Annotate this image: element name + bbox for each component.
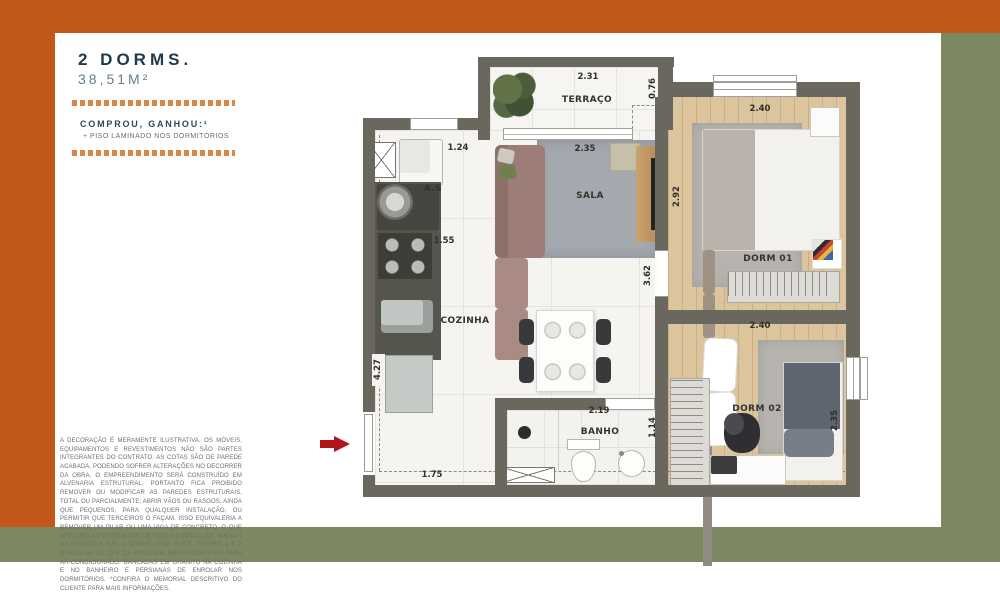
legal-disclaimer: A DECORAÇÃO É MERAMENTE ILUSTRATIVA. OS … xyxy=(60,437,242,593)
dorm2-desk xyxy=(710,455,786,485)
kitchen-sink-basin xyxy=(381,300,423,325)
sofa-pillow xyxy=(497,147,516,164)
promo-heading: COMPROU, GANHOU:¹ xyxy=(80,119,209,129)
dorm2-laptop xyxy=(711,456,737,474)
dim-cozinha-depth: 4.27 xyxy=(372,354,385,386)
hall-door-opening xyxy=(655,250,668,297)
dim-hall-depth: 3.62 xyxy=(642,260,655,292)
dorm1-window-sill xyxy=(713,75,797,82)
frame-right-column xyxy=(941,33,1000,562)
room-label-banho: BANHO xyxy=(570,426,630,438)
frame-top-bar xyxy=(0,0,1000,33)
dining-chair xyxy=(596,357,611,383)
dorm1-bed xyxy=(702,129,840,251)
room-label-sala: SALA xyxy=(560,190,620,202)
room-label-dorm2: DORM 02 xyxy=(717,403,797,415)
bathroom-sink-drain xyxy=(619,451,624,456)
entrance-arrow-icon xyxy=(320,436,352,452)
unit-area: 38,51M² xyxy=(78,71,150,87)
dorm1-color-artbox-stripes xyxy=(813,240,833,260)
dorm1-window xyxy=(713,82,797,97)
wall-terraco-top xyxy=(478,57,674,67)
dorm2-window-sill xyxy=(860,357,868,400)
room-label-cozinha: COZINHA xyxy=(425,315,505,327)
entrance-door-leaf xyxy=(364,414,373,472)
sofa-cushion xyxy=(495,258,528,309)
dim-terraco-depth: 0.76 xyxy=(647,73,660,105)
shower-head xyxy=(518,426,531,439)
dining-table xyxy=(536,310,594,392)
dim-terraco-width: 2.31 xyxy=(558,71,618,83)
room-label-terraco: TERRAÇO xyxy=(547,94,627,106)
dim-sala-width: 2.35 xyxy=(555,143,615,155)
frame-left-bar xyxy=(0,33,55,527)
laundry-tank-basin xyxy=(400,140,430,173)
brochure-page: { "colors": { "accent_orange": "#c3581b"… xyxy=(0,0,1000,562)
dorm1-wardrobe xyxy=(727,271,840,303)
dining-chair xyxy=(519,357,534,383)
wall-hall-lower xyxy=(655,297,668,485)
promo-item: + PISO LAMINADO NOS DORMITÓRIOS xyxy=(83,133,229,140)
tv xyxy=(651,158,655,230)
dim-as-counter: 1.55 xyxy=(416,235,472,247)
shower-divider xyxy=(558,410,559,472)
promo-bullet-icon: + xyxy=(83,133,88,140)
wall-bottom-outer xyxy=(363,485,860,497)
dim-cozinha-entry: 1.75 xyxy=(404,469,460,481)
wall-dorm1-top-right xyxy=(797,82,860,97)
dorm2-pillow xyxy=(784,429,834,457)
room-label-dorm1: DORM 01 xyxy=(728,253,808,265)
wall-right-outer-lower xyxy=(846,400,860,497)
bathroom-sink xyxy=(618,450,645,477)
room-label-as: A.S xyxy=(405,183,461,195)
dorm2-wardrobe-hangers xyxy=(671,379,703,479)
dining-chair xyxy=(519,319,534,345)
dashed-divider-bottom xyxy=(72,150,235,156)
sala-terraco-sliding-door xyxy=(503,128,633,140)
dim-dorm1-width: 2.40 xyxy=(730,103,790,115)
promo-item-label: PISO LAMINADO NOS DORMITÓRIOS xyxy=(90,133,229,140)
dim-dorm2-depth: 2.35 xyxy=(829,405,842,437)
dim-banho-width: 2.19 xyxy=(569,405,629,417)
dorm1-accent-pillow xyxy=(703,250,715,294)
fridge xyxy=(385,355,433,413)
dorm1-nightstand xyxy=(810,107,840,137)
plant xyxy=(493,71,541,123)
dorm1-wardrobe-hangers xyxy=(728,272,833,296)
wall-hall-upper xyxy=(655,97,668,250)
unit-title: 2 DORMS. xyxy=(78,50,192,70)
as-window xyxy=(410,118,458,130)
dorm1-color-artbox xyxy=(812,239,842,269)
banho-shaft-x-marker xyxy=(505,467,555,483)
dashed-divider-top xyxy=(72,100,235,106)
dorm2-desk-chair-seat xyxy=(724,413,744,435)
dim-as-width: 1.24 xyxy=(430,142,486,154)
dim-sala-depth: 2.92 xyxy=(671,181,684,213)
wall-banho-left xyxy=(495,398,507,497)
wall-dorm1-top-left xyxy=(665,82,713,97)
dorm1-bed-blanket xyxy=(703,130,755,250)
sofa-pillow-green xyxy=(499,164,517,180)
toilet-tank xyxy=(567,439,600,450)
dim-dorm2-width: 2.40 xyxy=(730,320,790,332)
dim-banho-depth: 1.14 xyxy=(647,412,660,444)
floor-plan: 2.31 TERRAÇO 0.76 2.35 SALA 2.92 3.62 1.… xyxy=(358,57,874,497)
dining-chair xyxy=(596,319,611,345)
dorm2-wardrobe xyxy=(670,378,710,486)
dorm2-desk-chair xyxy=(724,413,760,453)
dorm2-window xyxy=(846,357,860,400)
